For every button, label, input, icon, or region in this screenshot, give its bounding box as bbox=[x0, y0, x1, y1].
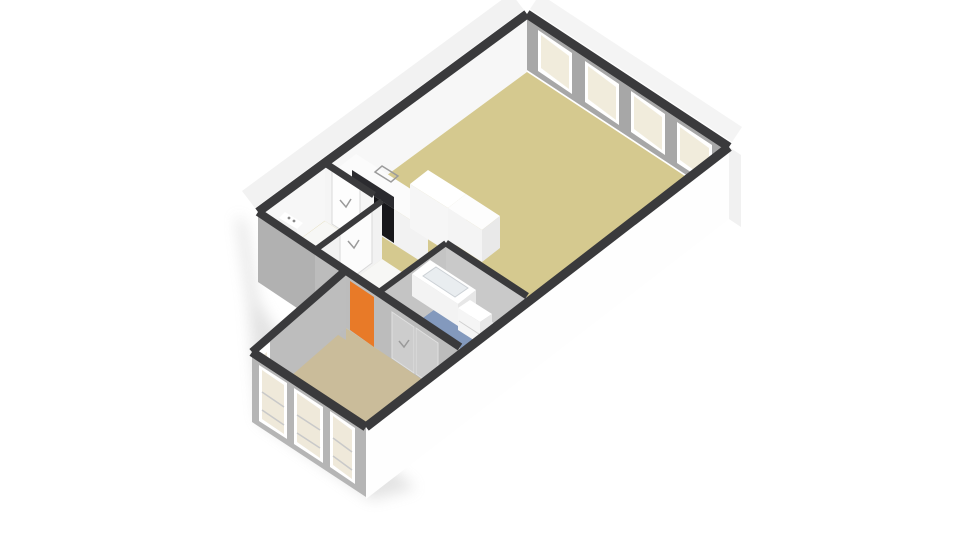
toilet-button-2 bbox=[293, 220, 296, 223]
se-exterior-wall-cap bbox=[729, 147, 741, 227]
toilet-button-1 bbox=[288, 217, 291, 220]
floor-plan-canvas bbox=[0, 0, 960, 540]
floor-plan-page bbox=[0, 0, 960, 540]
